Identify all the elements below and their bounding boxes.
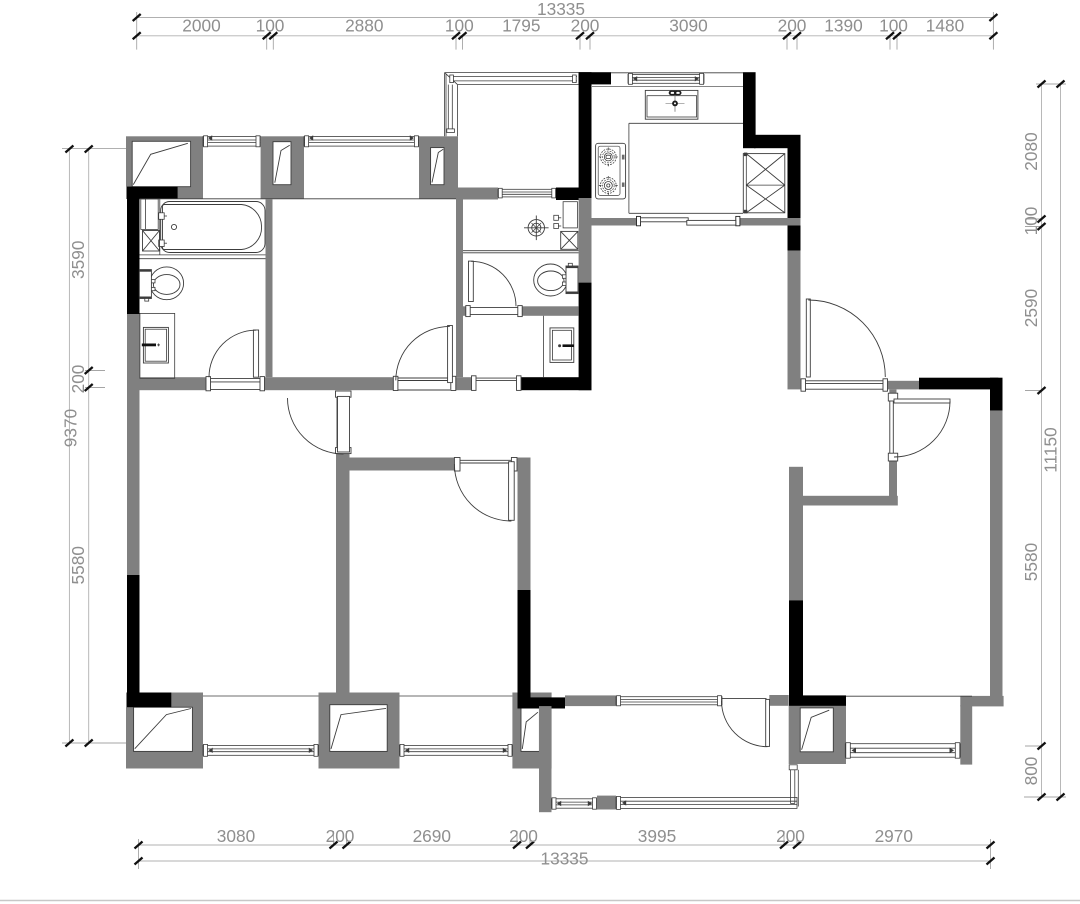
svg-text:2880: 2880 — [345, 16, 383, 36]
svg-text:200: 200 — [778, 16, 807, 36]
svg-text:5580: 5580 — [1021, 543, 1041, 581]
svg-text:100: 100 — [256, 16, 285, 36]
svg-text:2080: 2080 — [1021, 132, 1041, 170]
svg-text:1480: 1480 — [926, 16, 964, 36]
svg-text:13335: 13335 — [540, 849, 588, 869]
svg-text:100: 100 — [879, 16, 908, 36]
svg-text:100: 100 — [445, 16, 474, 36]
svg-text:200: 200 — [68, 365, 88, 394]
svg-text:1795: 1795 — [502, 16, 540, 36]
svg-text:1390: 1390 — [824, 16, 862, 36]
svg-text:3995: 3995 — [638, 826, 676, 846]
svg-text:800: 800 — [1021, 757, 1041, 786]
svg-text:9370: 9370 — [61, 409, 81, 447]
svg-text:2590: 2590 — [1021, 289, 1041, 327]
svg-text:2690: 2690 — [413, 826, 451, 846]
svg-text:200: 200 — [509, 826, 538, 846]
svg-text:100: 100 — [1021, 207, 1041, 236]
svg-text:2970: 2970 — [875, 826, 913, 846]
svg-text:3090: 3090 — [669, 16, 707, 36]
svg-text:3080: 3080 — [217, 826, 255, 846]
svg-text:200: 200 — [776, 826, 805, 846]
svg-text:2000: 2000 — [182, 16, 220, 36]
svg-text:200: 200 — [571, 16, 600, 36]
svg-text:5580: 5580 — [68, 546, 88, 584]
svg-text:200: 200 — [326, 826, 355, 846]
svg-text:3590: 3590 — [68, 241, 88, 279]
svg-text:11150: 11150 — [1041, 427, 1061, 473]
